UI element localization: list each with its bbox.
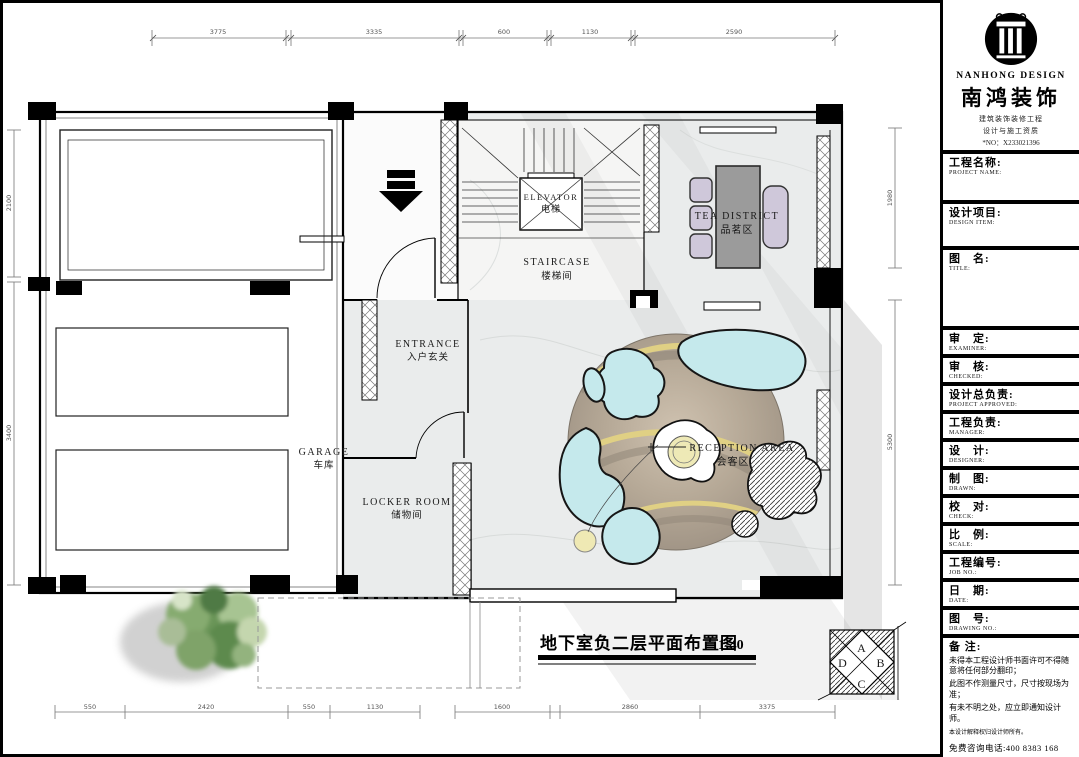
dashed-extent [258,598,520,688]
note-line: 未得本工程设计师书面许可不得随意将任何部分翻印； [949,656,1073,678]
elevator: ELEVATOR 电梯 [520,178,582,230]
staircase-label-en: STAIRCASE [523,257,590,268]
orientation-compass: A B C D [818,622,906,700]
brand-license-no: *NO：X233021396 [982,138,1039,148]
field-project-approved: 设计总负责: PROJECT APPROVED: [943,382,1079,410]
compass-b: B [876,656,885,670]
dim-bot-1: 550 [84,703,96,711]
field-project-name: 工程名称: PROJECT NAME: [943,150,1079,200]
brand-panel: NANHONG DESIGN 南鸿装饰 建筑装饰装修工程 设计与施工资质 *NO… [943,0,1079,150]
brand-name-cn: 南鸿装饰 [961,82,1061,112]
notes-panel: 备 注: 未得本工程设计师书面许可不得随意将任何部分翻印； 此图不作测量尺寸，尺… [943,634,1079,757]
dim-right-2: 5300 [886,434,894,451]
field-check: 校 对: CHECK: [943,494,1079,522]
field-drawn: 制 图: DRAWN: [943,466,1079,494]
reception-label-en: RECEPTION AREA [689,443,794,454]
field-drawing-no: 图 号: DRAWING NO.: [943,606,1079,634]
staircase-label-cn: 楼梯间 [541,270,573,282]
note-line: 此图不作测量尺寸，尺寸按现场为准； [949,679,1073,701]
field-designer: 设 计: DESIGNER: [943,438,1079,466]
elevator-label-cn: 电梯 [541,203,561,214]
dim-bot-3: 550 [303,703,315,711]
tea-label-en: TEA DISTRICT [695,211,779,222]
entrance-label-en: ENTRANCE [395,339,460,350]
dim-bot-4: 1130 [367,703,384,711]
dim-left-1: 2100 [5,195,13,212]
side-table-small [574,530,596,552]
field-manager: 工程负责: MANAGER: [943,410,1079,438]
tea-chair [690,234,712,258]
field-date: 日 期: DATE: [943,578,1079,606]
field-examiner: 审 定: EXAMINER: [943,326,1079,354]
dim-top-3: 600 [498,28,510,36]
brand-name-en: NANHONG DESIGN [956,71,1065,81]
garage-label-en: GARAGE [299,447,350,458]
column-logo-icon [982,10,1040,66]
locker-label-cn: 储物间 [391,509,423,521]
field-title: 图 名: TITLE: [943,246,1079,326]
dim-bot-2: 2420 [198,703,215,711]
note-line: 有未不明之处，应立即通知设计师。 [949,703,1073,725]
drawing-sheet: ELEVATOR 电梯 TEA DISTRICT [0,0,1079,757]
dim-bot-7: 3375 [759,703,776,711]
sofa-bottom [602,508,659,564]
entrance-label-cn: 入户玄关 [407,351,449,363]
elevator-label-en: ELEVATOR [524,192,579,202]
tea-label-cn: 品茗区 [721,224,754,236]
dim-bot-5: 1600 [494,703,511,711]
field-scale: 比 例: SCALE: [943,522,1079,550]
reception-label-cn: 会客区 [717,455,750,468]
pouf-small [732,511,758,537]
note-tiny: 本设计解释权归设计师所有。 [949,727,1073,736]
dim-top-2: 3335 [366,28,383,36]
dim-right-1: 1980 [886,190,894,207]
floor-plan-canvas: ELEVATOR 电梯 TEA DISTRICT [0,0,940,757]
drawing-caption: 地下室负二层平面布置图 1:40 [538,633,756,664]
hotline: 免费咨询电话:400 8383 168 [949,742,1073,754]
field-job-no: 工程编号: JOB NO.: [943,550,1079,578]
notes-label: 备 注: [949,641,1073,654]
brand-sub1: 建筑装饰装修工程 [979,114,1043,124]
dim-top-1: 3775 [210,28,227,36]
field-design-item: 设计项目: DESIGN ITEM: [943,200,1079,246]
caption-text: 地下室负二层平面布置图 [540,633,738,653]
dim-bot-6: 2860 [622,703,639,711]
dim-left-2: 3400 [5,425,13,442]
locker-label-en: LOCKER ROOM [362,497,451,508]
caption-scale: 1:40 [718,638,744,653]
compass-d: D [838,656,848,670]
dim-top-4: 1130 [582,28,599,36]
tree-plan-symbol [120,586,267,682]
garage-label-cn: 车库 [313,459,334,471]
compass-a: A [857,641,867,655]
field-checked: 审 核: CHECKED: [943,354,1079,382]
tea-chair [690,178,712,202]
title-block: NANHONG DESIGN 南鸿装饰 建筑装饰装修工程 设计与施工资质 *NO… [940,0,1079,757]
dim-top-5: 2590 [726,28,743,36]
brand-sub2: 设计与施工资质 [983,126,1039,136]
compass-c: C [857,677,866,691]
